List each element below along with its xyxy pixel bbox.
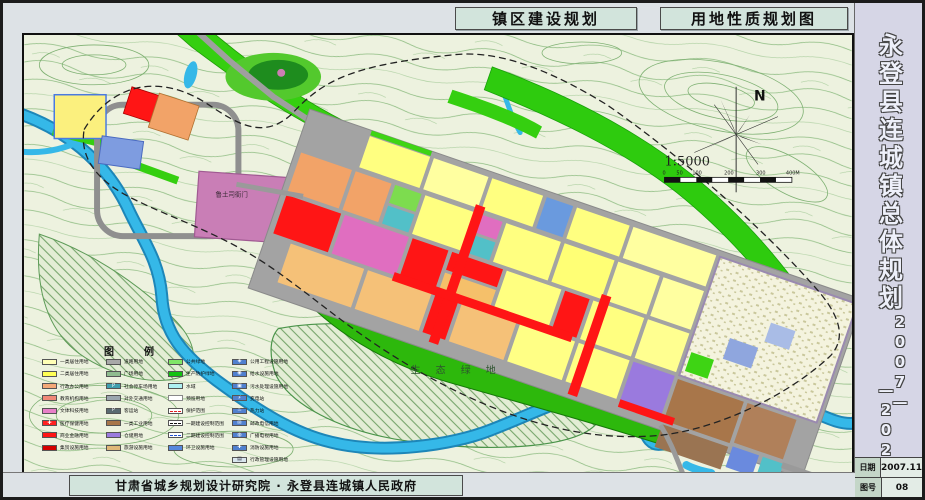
scale-tick: 100 [692, 170, 701, 176]
scale-tick: 300 [756, 170, 765, 176]
legend-label: 一类居住用地 [60, 358, 89, 365]
legend-item: ⚡变电站 [232, 394, 265, 403]
legend-label: 公用工程设施用地 [250, 358, 288, 365]
legend-swatch [42, 408, 57, 414]
legend-item: ✚医疗保健用地 [42, 419, 90, 428]
legend-item: 保护范围 [168, 406, 206, 415]
legend-swatch: P [106, 383, 121, 389]
legend-swatch: ✚ [232, 445, 247, 451]
legend-item: ▤行政管理设施用地 [232, 455, 290, 464]
legend-label: 广播电视用地 [250, 432, 279, 439]
legend-swatch [42, 395, 57, 401]
legend-item: P社会停车场用地 [106, 382, 159, 391]
legend-label: 一期建设控制范围 [186, 420, 224, 427]
legend-swatch: ◍ [232, 432, 247, 438]
sheet-title-right: 用地性质规划图 [660, 7, 848, 30]
legend-swatch: ◉ [232, 371, 247, 377]
legend-item: ✚消防设施用地 [232, 443, 280, 452]
legend-swatch: ◈ [232, 359, 247, 365]
legend-swatch: ▤ [232, 457, 247, 463]
table-row: 日期 2007.11 [855, 458, 922, 478]
date-value: 2007.11 [881, 458, 922, 477]
legend-swatch: ✚ [42, 420, 57, 426]
legend-swatch: P [106, 408, 121, 414]
legend-swatch [168, 359, 183, 365]
legend-label: 行政办公用地 [60, 383, 89, 390]
scale-tick: 400M [786, 170, 800, 176]
legend-item: 水域 [168, 382, 196, 391]
legend-swatch [106, 420, 121, 426]
legend-item: 一类居住用地 [42, 357, 90, 366]
sheet-no-value: 08 [882, 478, 922, 497]
sheet-title-left: 镇区建设规划 [455, 7, 637, 30]
legend-label: 仓储用地 [124, 432, 143, 439]
legend-swatch [168, 383, 183, 389]
legend-label: 保护范围 [186, 407, 205, 414]
legend-swatch [168, 408, 183, 414]
legend-label: 热力站 [250, 407, 264, 414]
legend-item: 仓储用地 [106, 431, 144, 440]
legend-item: 商业金融用地 [42, 431, 90, 440]
legend-label: 客运站 [124, 407, 138, 414]
legend-title: 图 例 [34, 343, 234, 358]
legend-label: 对外交通用地 [124, 395, 153, 402]
legend-swatch [106, 445, 121, 451]
legend-label: 医疗保健用地 [60, 420, 89, 427]
legend-label: 广场用地 [124, 370, 143, 377]
legend-label: 道路用地 [124, 358, 143, 365]
legend-item: 教育机构用地 [42, 394, 90, 403]
legend-swatch [168, 395, 183, 401]
legend-swatch: ✉ [232, 420, 247, 426]
legend-swatch [42, 371, 57, 377]
scale-tick: 50 [676, 170, 682, 176]
map-canvas: 生 态 绿 地 鲁土司衙门 N 1:5000 0 50 100 200 30 [22, 33, 854, 475]
legend-label: 二类居住用地 [60, 370, 89, 377]
legend-label: 旅游设施用地 [124, 444, 153, 451]
legend-label: 生产防护绿地 [186, 370, 215, 377]
legend-swatch [106, 371, 121, 377]
legend-swatch [106, 359, 121, 365]
legend-label: 文体科技用地 [60, 407, 89, 414]
legend-label: 教育机构用地 [60, 395, 89, 402]
legend-item: 集贸设施用地 [42, 443, 90, 452]
legend-item: ◉给水设施用地 [232, 369, 280, 378]
eco-green-label: 生 态 绿 地 [411, 363, 502, 376]
legend-swatch: ⚡ [232, 395, 247, 401]
heritage-label: 鲁土司衙门 [216, 189, 248, 198]
legend-swatch [168, 420, 183, 426]
legend-label: 环卫设施用地 [186, 444, 215, 451]
legend-item: P客运站 [106, 406, 139, 415]
sheet-no-label: 图号 [855, 478, 882, 497]
legend-item: ◍广播电视用地 [232, 431, 280, 440]
legend-item: ◈公用工程设施用地 [232, 357, 290, 366]
legend-swatch [42, 432, 57, 438]
footer-strip: 甘肃省城乡规划设计研究院 · 永登县连城镇人民政府 [3, 472, 855, 497]
legend-item: 二期建设控制范围 [168, 431, 226, 440]
legend-item: ▣污水处理设施用地 [232, 382, 290, 391]
legend-label: 商业金融用地 [60, 432, 89, 439]
plan-sheet: 镇区建设规划 用地性质规划图 [0, 0, 925, 500]
table-row: 图号 08 [855, 478, 922, 497]
legend-label: 污水处理设施用地 [250, 383, 288, 390]
plan-title-vertical: 永登县连城镇总体规划 [877, 33, 901, 313]
legend-label: 行政管理设施用地 [250, 457, 288, 464]
legend-label: 二期建设控制范围 [186, 432, 224, 439]
legend-swatch [168, 445, 183, 451]
legend: 图 例 一类居住用地二类居住用地行政办公用地教育机构用地文体科技用地✚医疗保健用… [34, 341, 302, 469]
legend-item: 对外交通用地 [106, 394, 154, 403]
legend-swatch: ♨ [232, 408, 247, 414]
legend-label: 消防设施用地 [250, 444, 279, 451]
legend-label: 给水设施用地 [250, 370, 279, 377]
agency-title: 甘肃省城乡规划设计研究院 · 永登县连城镇人民政府 [69, 475, 463, 496]
title-block-table: 日期 2007.11 图号 08 [855, 457, 922, 497]
legend-swatch [168, 432, 183, 438]
legend-item: 公共绿地 [168, 357, 206, 366]
legend-item: ♨热力站 [232, 406, 265, 415]
north-label: N [754, 89, 766, 105]
legend-item: 文体科技用地 [42, 406, 90, 415]
legend-item: 环卫设施用地 [168, 443, 216, 452]
legend-label: 水域 [186, 383, 196, 390]
scale-tick: 200 [724, 170, 733, 176]
legend-label: 邮政电信用地 [250, 420, 279, 427]
legend-item: 预留用地 [168, 394, 206, 403]
legend-item: ✉邮政电信用地 [232, 419, 280, 428]
sidebar-title-panel: 永登县连城镇总体规划 2007— —2020 日期 2007.11 图号 08 [854, 3, 922, 497]
legend-label: 集贸设施用地 [60, 444, 89, 451]
legend-swatch [168, 371, 183, 377]
legend-item: 一期建设控制范围 [168, 419, 226, 428]
legend-item: 一类工业用地 [106, 419, 154, 428]
legend-item: 广场用地 [106, 369, 144, 378]
legend-swatch [42, 383, 57, 389]
legend-swatch: ▣ [232, 383, 247, 389]
legend-label: 社会停车场用地 [124, 383, 157, 390]
legend-swatch [42, 445, 57, 451]
legend-swatch [106, 432, 121, 438]
scale-tick: 0 [662, 170, 665, 176]
legend-swatch [106, 395, 121, 401]
legend-item: 旅游设施用地 [106, 443, 154, 452]
legend-item: 生产防护绿地 [168, 369, 216, 378]
scale-text: 1:5000 [664, 154, 710, 169]
legend-item: 道路用地 [106, 357, 144, 366]
legend-item: 行政办公用地 [42, 382, 90, 391]
legend-label: 一类工业用地 [124, 420, 153, 427]
legend-swatch [42, 359, 57, 365]
legend-label: 变电站 [250, 395, 264, 402]
legend-label: 公共绿地 [186, 358, 205, 365]
legend-item: 二类居住用地 [42, 369, 90, 378]
legend-label: 预留用地 [186, 395, 205, 402]
date-label: 日期 [855, 458, 881, 477]
